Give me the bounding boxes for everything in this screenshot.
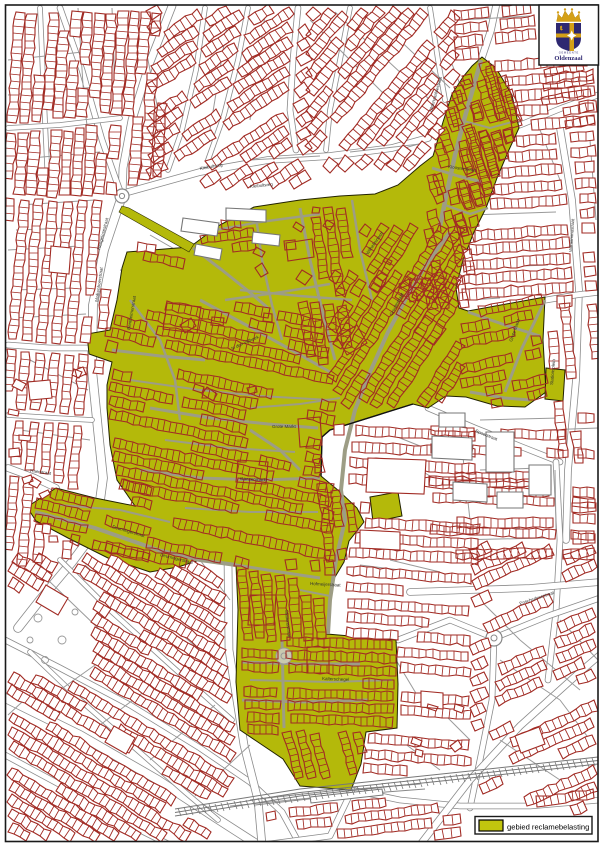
svg-text:Kalterschegel: Kalterschegel bbox=[322, 676, 349, 682]
svg-text:G E M E E N T E: G E M E E N T E bbox=[559, 51, 579, 55]
svg-text:Grote Markt: Grote Markt bbox=[272, 424, 297, 429]
svg-text:Oldenzaal: Oldenzaal bbox=[554, 55, 582, 62]
svg-text:gebied reclamebelasting: gebied reclamebelasting bbox=[507, 823, 589, 832]
